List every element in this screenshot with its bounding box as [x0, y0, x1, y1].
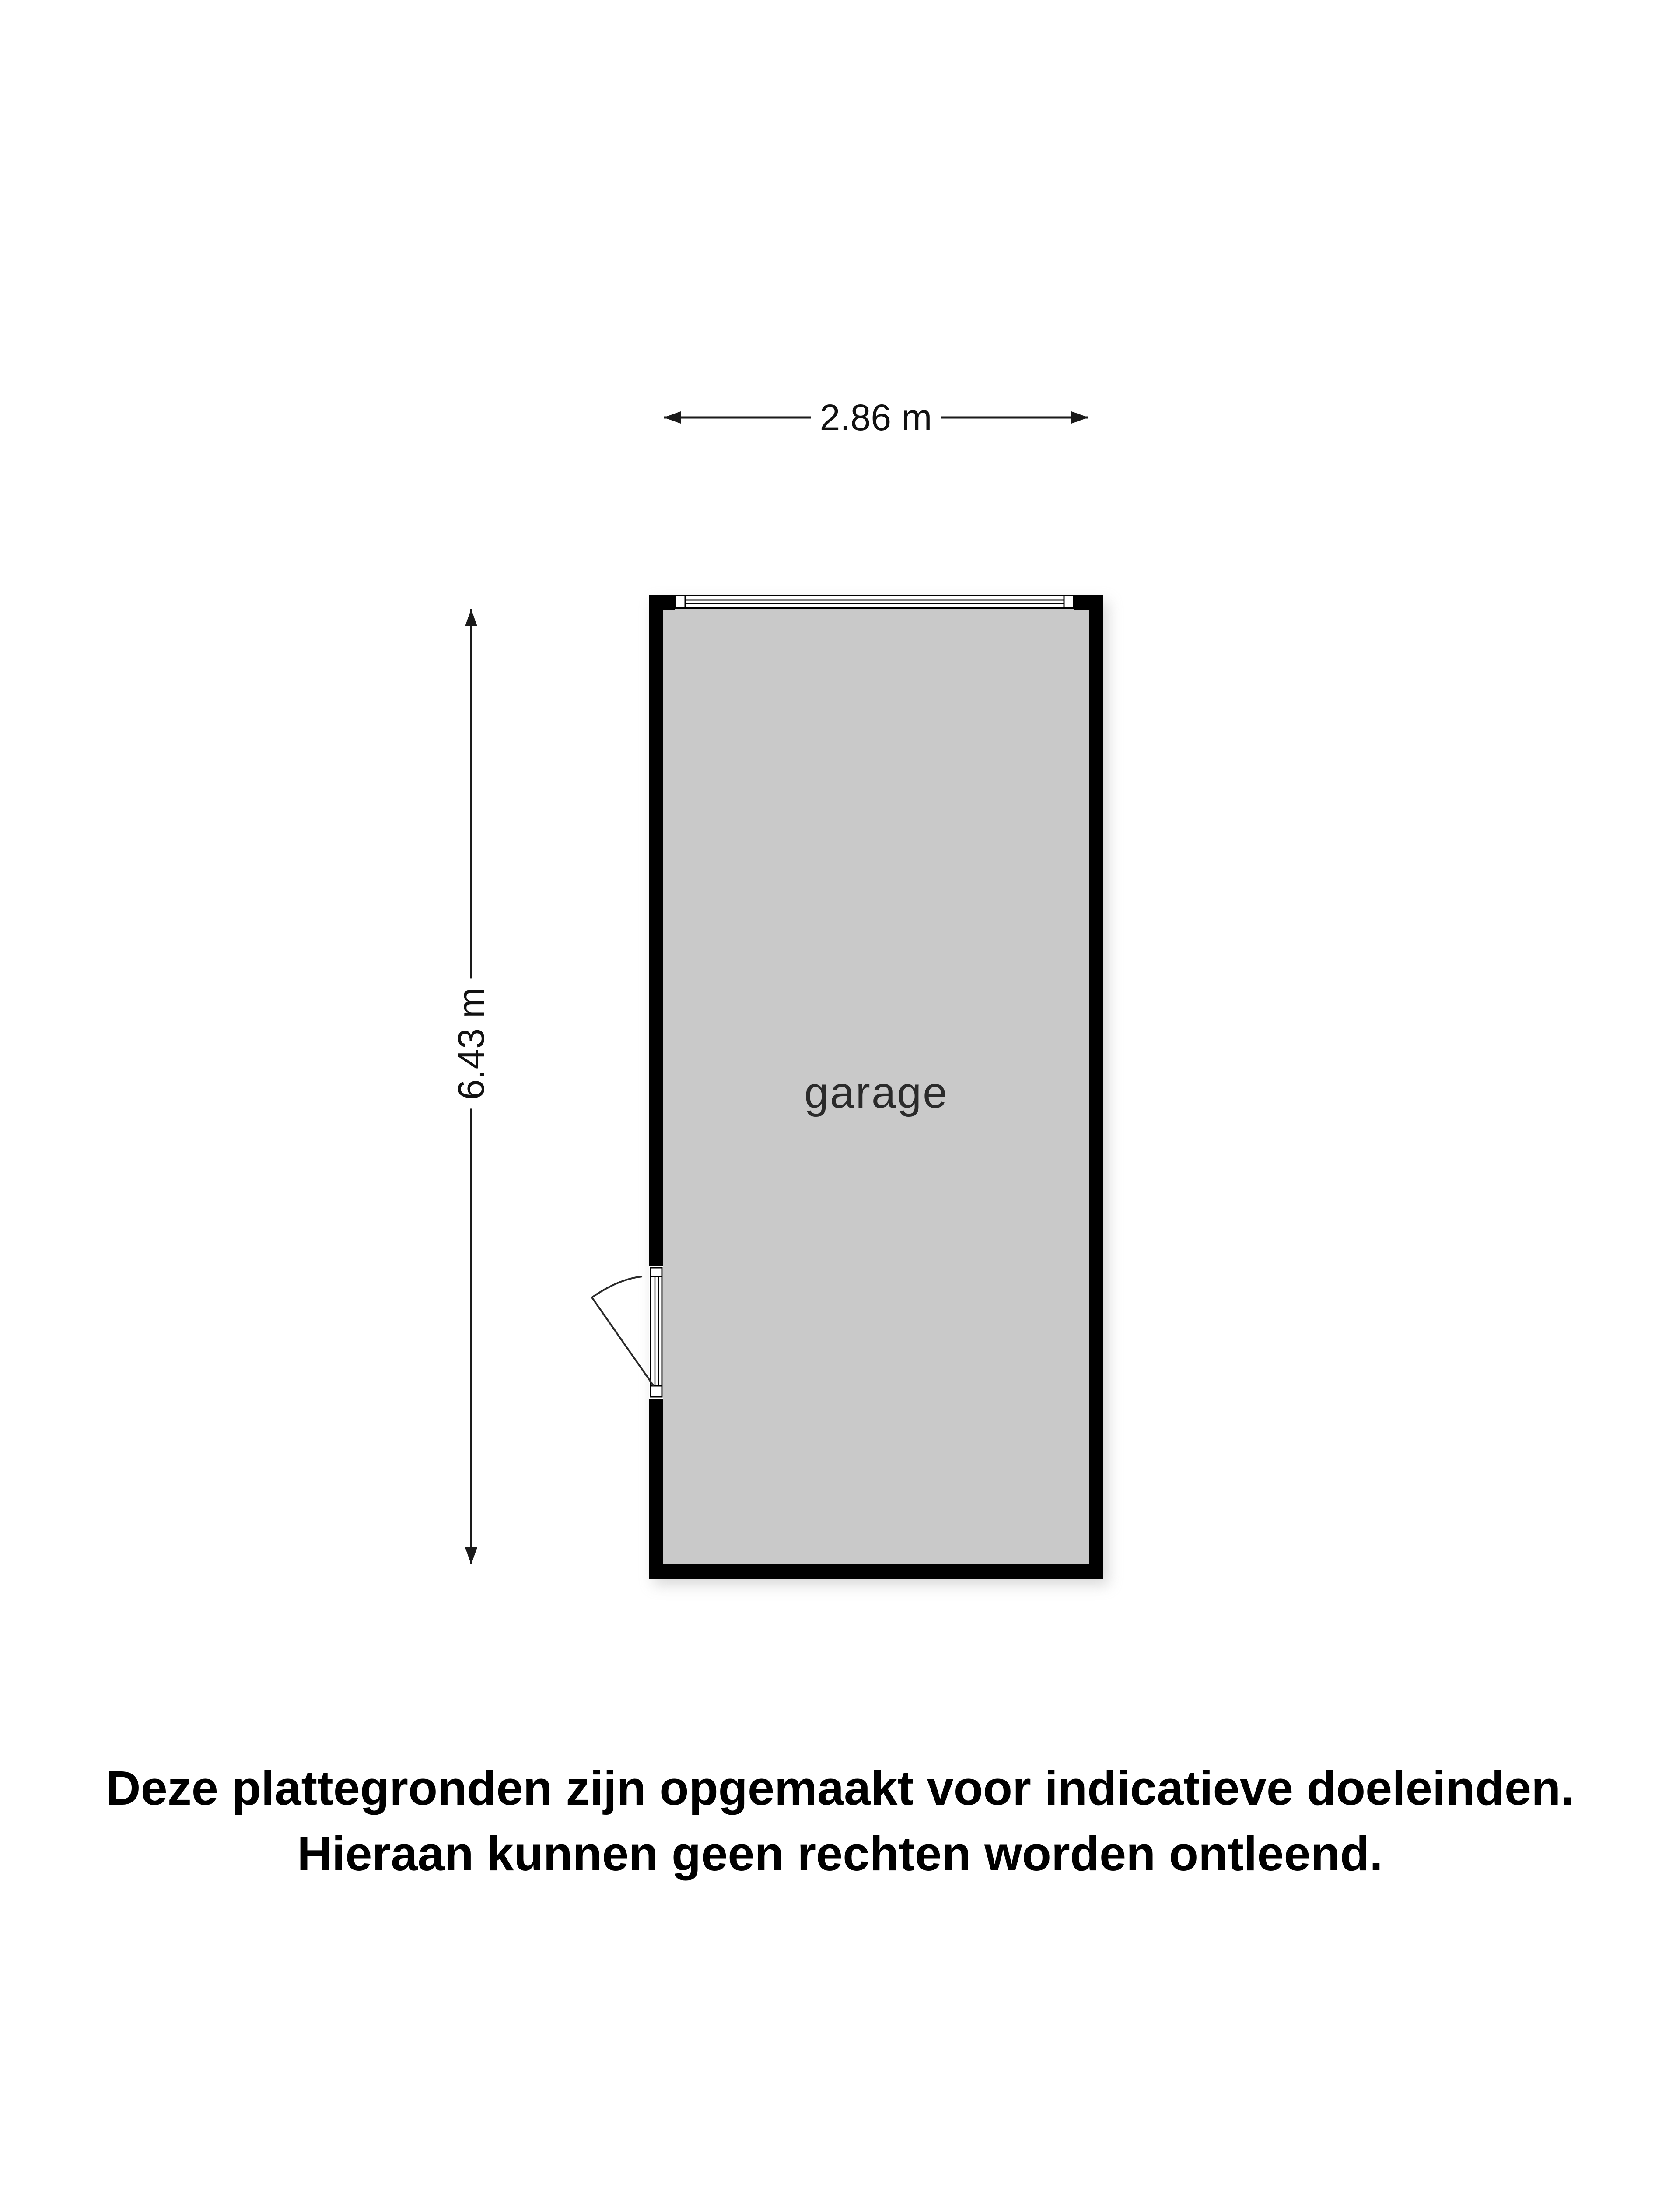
- wall-top-right-block: [1074, 595, 1103, 610]
- door-jamb-bottom: [651, 1386, 662, 1397]
- floorplan-page: 2.86 m 6.43 m garage Deze plattegronden …: [0, 0, 1680, 2188]
- width-dimension-label: 2.86 m: [811, 399, 941, 436]
- garage-door-top: [675, 596, 1074, 608]
- door-swing-arc: [592, 1276, 654, 1386]
- wall-right: [1089, 595, 1103, 1579]
- disclaimer-line-1: Deze plattegronden zijn opgemaakt voor i…: [0, 1756, 1680, 1821]
- width-arrow-right: [1071, 411, 1088, 424]
- disclaimer-line-2: Hieraan kunnen geen rechten worden ontle…: [0, 1821, 1680, 1887]
- wall-left-upper: [649, 595, 663, 1266]
- wall-left-lower: [649, 1399, 663, 1579]
- width-arrow-left: [664, 411, 681, 424]
- height-dimension-label: 6.43 m: [453, 979, 490, 1109]
- side-door: [592, 1266, 663, 1399]
- door-leaf: [651, 1276, 662, 1386]
- wall-top-left-block: [649, 595, 675, 610]
- door-jamb-top: [651, 1268, 662, 1276]
- height-arrow-bottom: [465, 1547, 477, 1564]
- garage-door-frame: [675, 596, 1074, 608]
- height-arrow-top: [465, 609, 477, 626]
- wall-bottom: [649, 1564, 1103, 1579]
- disclaimer-text: Deze plattegronden zijn opgemaakt voor i…: [0, 1756, 1680, 1887]
- room-label-garage: garage: [804, 1071, 948, 1115]
